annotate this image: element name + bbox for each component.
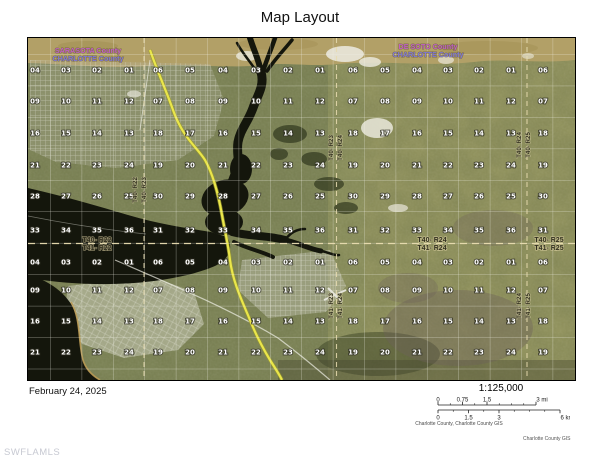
section-number: 10	[251, 287, 261, 295]
section-number: 33	[218, 227, 228, 235]
section-number: 34	[251, 227, 261, 235]
section-number: 03	[443, 259, 453, 267]
section-number: 22	[251, 349, 261, 357]
section-number: 02	[474, 259, 484, 267]
section-number: 30	[348, 193, 358, 201]
section-number: 09	[30, 287, 40, 295]
section-number: 24	[506, 349, 516, 357]
gis-credit: Charlotte County GIS	[523, 436, 571, 442]
section-number: 03	[61, 67, 71, 75]
section-number: 31	[348, 227, 358, 235]
section-number: 09	[412, 287, 422, 295]
scale-bar: 00.751.53 mi01.536 km	[430, 395, 570, 421]
section-number: 16	[218, 318, 228, 326]
section-number: 23	[92, 162, 102, 170]
section-number: 06	[153, 259, 163, 267]
county-label: CHARLOTTE County	[52, 54, 123, 63]
section-number: 14	[283, 130, 293, 138]
section-number: 14	[474, 130, 484, 138]
section-number: 30	[538, 193, 548, 201]
page-title: Map Layout	[0, 9, 600, 26]
township-label: T41- R24	[417, 245, 446, 252]
section-number: 09	[218, 98, 228, 106]
section-number: 13	[506, 130, 516, 138]
section-number: 01	[124, 67, 134, 75]
section-number: 07	[348, 287, 358, 295]
section-number: 35	[474, 227, 484, 235]
section-number: 17	[380, 130, 390, 138]
township-label: T41- R22	[82, 245, 111, 252]
section-number: 26	[283, 193, 293, 201]
section-number: 21	[412, 349, 422, 357]
section-number: 13	[506, 318, 516, 326]
section-number: 26	[474, 193, 484, 201]
section-number: 15	[251, 318, 261, 326]
section-number: 24	[315, 162, 325, 170]
section-number: 10	[61, 287, 71, 295]
section-number: 12	[506, 98, 516, 106]
section-number: 04	[30, 67, 40, 75]
section-number: 09	[412, 98, 422, 106]
section-number: 06	[538, 259, 548, 267]
section-number: 07	[153, 98, 163, 106]
section-number: 14	[92, 318, 102, 326]
section-number: 24	[506, 162, 516, 170]
section-number: 12	[315, 98, 325, 106]
section-number: 15	[61, 130, 71, 138]
section-number: 30	[153, 193, 163, 201]
scale-km-label: 6 km	[560, 416, 570, 422]
section-number: 01	[506, 259, 516, 267]
section-number: 13	[315, 130, 325, 138]
section-number: 04	[218, 259, 228, 267]
scale-mile-label: 3 mi	[536, 398, 547, 404]
section-number: 35	[92, 227, 102, 235]
section-number: 19	[348, 349, 358, 357]
section-number: 07	[538, 98, 548, 106]
section-number: 15	[61, 318, 71, 326]
section-number: 08	[380, 287, 390, 295]
range-label: T40- R24	[516, 132, 523, 158]
section-number: 19	[348, 162, 358, 170]
section-number: 07	[538, 287, 548, 295]
section-number: 13	[124, 130, 134, 138]
section-number: 32	[185, 227, 195, 235]
section-number: 04	[412, 259, 422, 267]
section-number: 12	[506, 287, 516, 295]
section-number: 29	[380, 193, 390, 201]
section-number: 36	[506, 227, 516, 235]
section-number: 06	[538, 67, 548, 75]
section-number: 21	[218, 162, 228, 170]
section-number: 08	[380, 98, 390, 106]
map-canvas[interactable]: 0409162128330409162103101522273403101522…	[27, 37, 576, 381]
section-number: 04	[218, 67, 228, 75]
section-number: 09	[218, 287, 228, 295]
section-number: 19	[538, 162, 548, 170]
section-number: 11	[92, 98, 102, 106]
section-number: 07	[348, 98, 358, 106]
county-label: CHARLOTTE County	[392, 50, 463, 59]
section-number: 27	[251, 193, 261, 201]
range-label: T40- R23	[141, 177, 148, 203]
section-number: 11	[474, 287, 484, 295]
section-number: 10	[251, 98, 261, 106]
section-number: 21	[30, 162, 40, 170]
section-number: 11	[283, 98, 293, 106]
section-number: 33	[412, 227, 422, 235]
section-number: 04	[30, 259, 40, 267]
scale-mile-label: 1.5	[483, 398, 492, 404]
section-number: 15	[443, 130, 453, 138]
section-number: 03	[251, 67, 261, 75]
section-number: 28	[30, 193, 40, 201]
scale-ratio: 1:125,000	[436, 383, 566, 394]
section-number: 02	[92, 259, 102, 267]
section-number: 01	[315, 67, 325, 75]
section-number: 21	[412, 162, 422, 170]
section-number: 08	[185, 287, 195, 295]
section-number: 18	[538, 318, 548, 326]
section-number: 09	[30, 98, 40, 106]
section-number: 05	[185, 259, 195, 267]
range-label: T40- R25	[525, 132, 532, 158]
section-number: 15	[251, 130, 261, 138]
range-label: T41- R23	[328, 293, 335, 319]
section-number: 23	[283, 349, 293, 357]
section-number: 26	[92, 193, 102, 201]
section-number: 24	[315, 349, 325, 357]
section-number: 11	[474, 98, 484, 106]
range-label: T40- R24	[337, 135, 344, 161]
section-number: 06	[153, 67, 163, 75]
section-number: 22	[443, 349, 453, 357]
range-label: T41- R24	[516, 293, 523, 319]
section-number: 16	[218, 130, 228, 138]
section-number: 08	[185, 98, 195, 106]
section-number: 15	[443, 318, 453, 326]
scale-mile-label: 0	[436, 398, 440, 404]
section-number: 12	[315, 287, 325, 295]
section-number: 13	[124, 318, 134, 326]
section-number: 18	[153, 130, 163, 138]
section-number: 12	[124, 98, 134, 106]
section-number: 31	[153, 227, 163, 235]
section-number: 24	[124, 162, 134, 170]
section-number: 19	[153, 349, 163, 357]
section-number: 33	[30, 227, 40, 235]
section-number: 06	[348, 259, 358, 267]
map-date: February 24, 2025	[29, 386, 107, 397]
section-number: 18	[348, 130, 358, 138]
section-number: 06	[348, 67, 358, 75]
section-number: 23	[283, 162, 293, 170]
section-number: 18	[348, 318, 358, 326]
range-label: T40- R22	[132, 177, 139, 203]
section-number: 02	[283, 67, 293, 75]
section-number: 10	[443, 98, 453, 106]
section-number: 28	[218, 193, 228, 201]
section-number: 24	[124, 349, 134, 357]
township-label: T40- R24	[417, 237, 446, 244]
range-label: T41- R25	[525, 293, 532, 319]
section-number: 19	[538, 349, 548, 357]
section-number: 10	[61, 98, 71, 106]
section-number: 07	[153, 287, 163, 295]
section-number: 10	[443, 287, 453, 295]
section-number: 35	[283, 227, 293, 235]
scale-attribution: Charlotte County, Charlotte County GIS	[403, 421, 515, 427]
section-number: 28	[412, 193, 422, 201]
section-number: 16	[412, 130, 422, 138]
section-number: 05	[185, 67, 195, 75]
section-number: 23	[474, 349, 484, 357]
section-number: 20	[185, 162, 195, 170]
section-number: 22	[61, 162, 71, 170]
section-number: 19	[153, 162, 163, 170]
section-number: 20	[380, 162, 390, 170]
section-number: 31	[538, 227, 548, 235]
section-number: 20	[380, 349, 390, 357]
section-number: 22	[443, 162, 453, 170]
section-number: 18	[153, 318, 163, 326]
section-number: 11	[92, 287, 102, 295]
section-number: 02	[474, 67, 484, 75]
section-number: 27	[443, 193, 453, 201]
section-number: 17	[380, 318, 390, 326]
section-number: 02	[283, 259, 293, 267]
section-number: 36	[315, 227, 325, 235]
section-number: 18	[538, 130, 548, 138]
section-number: 17	[185, 130, 195, 138]
section-number: 25	[506, 193, 516, 201]
section-number: 14	[92, 130, 102, 138]
section-number: 14	[283, 318, 293, 326]
section-number: 03	[443, 67, 453, 75]
section-number: 16	[30, 130, 40, 138]
section-number: 22	[251, 162, 261, 170]
section-number: 04	[412, 67, 422, 75]
section-number: 27	[61, 193, 71, 201]
section-number: 03	[61, 259, 71, 267]
range-label: T40- R23	[328, 135, 335, 161]
section-number: 03	[251, 259, 261, 267]
section-number: 05	[380, 259, 390, 267]
section-number: 12	[124, 287, 134, 295]
township-label: T41- R25	[534, 245, 563, 252]
section-number: 25	[315, 193, 325, 201]
section-number: 16	[30, 318, 40, 326]
section-number: 36	[124, 227, 134, 235]
range-label: T41- R24	[337, 293, 344, 319]
section-number: 13	[315, 318, 325, 326]
section-number: 02	[92, 67, 102, 75]
section-number: 14	[474, 318, 484, 326]
section-number: 21	[30, 349, 40, 357]
section-number: 01	[506, 67, 516, 75]
township-label: T40- R22	[82, 237, 111, 244]
scale-mile-label: 0.75	[457, 398, 469, 404]
section-number: 01	[124, 259, 134, 267]
section-number: 05	[380, 67, 390, 75]
section-number: 21	[218, 349, 228, 357]
section-number: 34	[443, 227, 453, 235]
section-number: 29	[185, 193, 195, 201]
satellite-map: 0409162128330409162103101522273403101522…	[28, 38, 575, 380]
section-number: 34	[61, 227, 71, 235]
section-number: 22	[61, 349, 71, 357]
section-number: 20	[185, 349, 195, 357]
section-number: 23	[92, 349, 102, 357]
section-number: 23	[474, 162, 484, 170]
section-number: 16	[412, 318, 422, 326]
township-label: T40- R25	[534, 237, 563, 244]
watermark: SWFLAMLS	[4, 447, 60, 458]
section-number: 11	[283, 287, 293, 295]
section-number: 01	[315, 259, 325, 267]
section-number: 32	[380, 227, 390, 235]
section-number: 17	[185, 318, 195, 326]
